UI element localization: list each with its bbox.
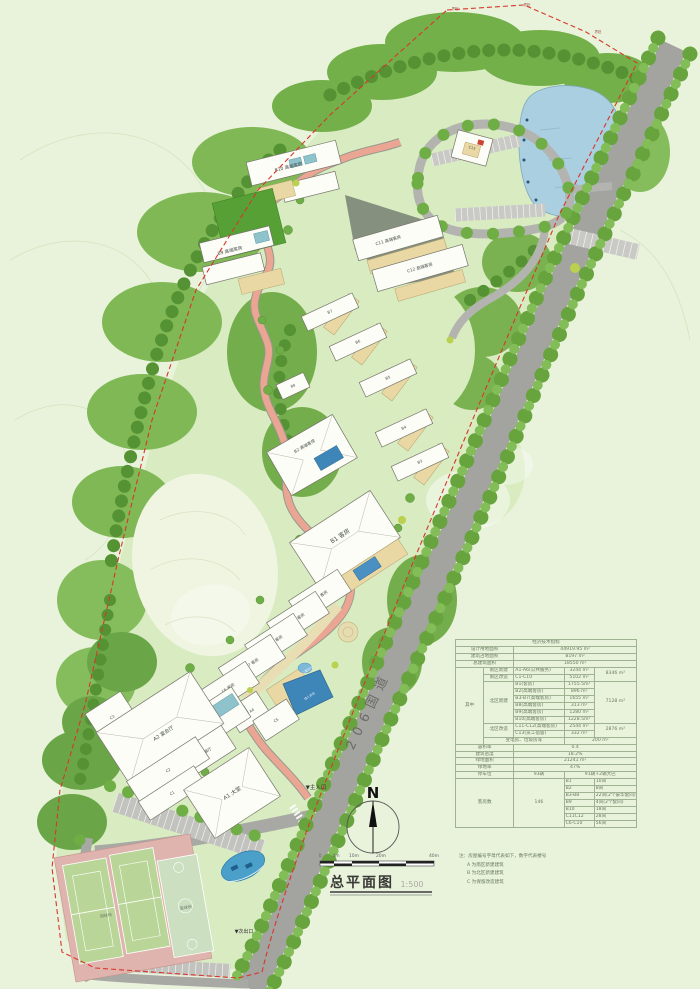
scale-tick-0: 0 xyxy=(319,853,322,859)
scale-tick-1: 4m xyxy=(332,853,339,859)
far-value: 0.4 xyxy=(514,744,637,751)
rooms-c11-value: 28间 xyxy=(594,814,636,821)
b9-area: 1280 m² xyxy=(564,709,594,716)
density-label: 建筑密度 xyxy=(456,751,514,758)
scale-tick-3: 20m xyxy=(376,853,386,859)
b1-item: B1(客房) xyxy=(514,681,564,688)
indicators-title: 经济技术指标 xyxy=(456,640,637,647)
north-ren-label: 北区改造 xyxy=(484,723,514,737)
rooms-b3-value: 22间(2个豪华套间) xyxy=(594,793,636,800)
scale-tick-4: 40m xyxy=(429,853,439,859)
land-label: 设计用地面积 xyxy=(456,646,514,653)
green-area-label: 绿地面积 xyxy=(456,758,514,765)
site-plan-image: B10 高端客房 B9 高端客房 C11 高端客房 C12 高端客房 C13 B… xyxy=(0,0,700,989)
rooms-b3: B3-B8 xyxy=(564,793,594,800)
gfa-label: 总建筑面积 xyxy=(456,660,514,667)
stake-label-1: 界桩 xyxy=(452,6,459,11)
rooms-b9-value: 4间(2个套间) xyxy=(594,800,636,807)
stake-label-3: 界桩 xyxy=(595,29,602,34)
c11-area: 2544 m² xyxy=(564,723,594,730)
north-subtotal: 7128 m² xyxy=(594,681,636,723)
b2-item: B2(高端客房) xyxy=(514,688,564,695)
rooms-b9: B9 xyxy=(564,800,594,807)
gfa-value: 18550 m² xyxy=(514,660,637,667)
green-rate-label: 绿地率 xyxy=(456,765,514,772)
parking-count: 93辆 xyxy=(514,772,564,779)
c11-item: C11-C12(高端客房) xyxy=(514,723,564,730)
rooms-b1-value: 10间 xyxy=(594,779,636,786)
footprint-label: 建筑占地面积 xyxy=(456,653,514,660)
note-line-1: A 为南区新建建筑 xyxy=(459,862,546,871)
b8-item: B8(高端客房) xyxy=(514,702,564,709)
utility-label: 变电房、垃圾房等 xyxy=(484,737,564,744)
parking-detail: 91辆+2辆大巴 xyxy=(564,772,636,779)
south-ren-label: 南区改造 xyxy=(484,674,514,681)
parking-label: 停车位 xyxy=(456,772,514,779)
b9-item: B9(高端客房) xyxy=(514,709,564,716)
rooms-total: 146 xyxy=(514,779,564,828)
north-ren-subtotal: 2876 m² xyxy=(594,723,636,737)
rooms-b10-value: 18间 xyxy=(594,807,636,814)
note-line-0: 注：房屋编号字母代表如下，数字代表楼号 xyxy=(459,853,546,862)
rooms-c11: C11C12 xyxy=(564,814,594,821)
b10-area: 1228.5m² xyxy=(564,716,594,723)
south-new-label: 南区新建 xyxy=(484,667,514,674)
b10-item: B10(高端客房) xyxy=(514,716,564,723)
b1-area: 1755.5m² xyxy=(564,681,594,688)
south-subtotal: 8346 m² xyxy=(594,667,636,681)
b2-area: 896 m² xyxy=(564,688,594,695)
sports-courts: 网球场 篮球场 xyxy=(54,833,215,982)
rooms-b1: B1 xyxy=(564,779,594,786)
far-label: 容积率 xyxy=(456,744,514,751)
note-line-3: C 为保留改造建筑 xyxy=(459,879,546,888)
plaza xyxy=(338,622,358,642)
north-new-label: 北区新建 xyxy=(484,681,514,723)
rooms-label: 客房数 xyxy=(456,779,514,828)
south-ren-item: C1-C10 xyxy=(514,674,564,681)
green-area-value: 21241 m² xyxy=(514,758,637,765)
main-entrance-label: ▼主入口 xyxy=(306,783,327,791)
utility-area: 200 m² xyxy=(564,737,636,744)
legend-notes: 注：房屋编号字母代表如下，数字代表楼号 A 为南区新建建筑 B 为北区新建建筑 … xyxy=(459,853,546,888)
rooms-b2: B2 xyxy=(564,786,594,793)
rooms-b10: B10 xyxy=(564,807,594,814)
b3-area: 1655 m² xyxy=(564,695,594,702)
density-value: 18.2% xyxy=(514,751,637,758)
rooms-c6: C6-C10 xyxy=(564,821,594,828)
b8-area: 313 m² xyxy=(564,702,594,709)
title-scale: 1:500 xyxy=(400,880,423,889)
stake-label-2: 界桩 xyxy=(524,2,531,7)
site-plan-map: B10 高端客房 B9 高端客房 C11 高端客房 C12 高端客房 C13 B… xyxy=(0,0,700,989)
secondary-exit-label: ▼次出口 xyxy=(235,928,254,935)
b3-item: B3-B7(高端客房) xyxy=(514,695,564,702)
rooms-b2-value: 8间 xyxy=(594,786,636,793)
south-new-item: A1-A6(公共服务) xyxy=(514,667,564,674)
south-ren-area: 5102 m² xyxy=(564,674,594,681)
c13-item: C13(员工宿舍) xyxy=(514,730,564,737)
among-label: 其中 xyxy=(456,667,484,744)
note-line-2: B 为北区新建建筑 xyxy=(459,870,546,879)
land-value: 44919.95 m² xyxy=(514,646,637,653)
c13-area: 332 m² xyxy=(564,730,594,737)
south-new-area: 3244 m² xyxy=(564,667,594,674)
scale-tick-2: 10m xyxy=(349,853,359,859)
page-title: 总平面图 xyxy=(330,874,394,891)
footprint-value: 8197 m² xyxy=(514,653,637,660)
rooms-c6-value: 56间 xyxy=(594,821,636,828)
indicators-table: 经济技术指标 设计用地面积 44919.95 m² 建筑占地面积 8197 m²… xyxy=(455,639,637,828)
green-rate-value: 47% xyxy=(514,765,637,772)
north-label: N xyxy=(367,784,380,802)
